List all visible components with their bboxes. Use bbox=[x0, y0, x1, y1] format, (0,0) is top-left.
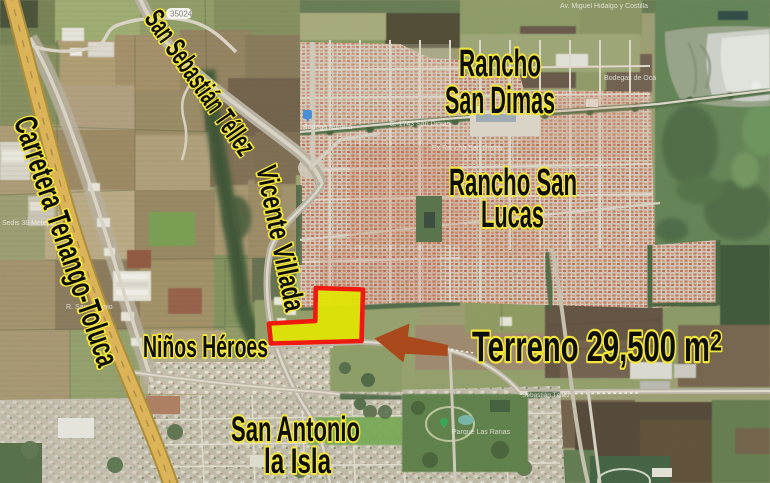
svg-text:Lucas: Lucas bbox=[481, 194, 544, 236]
svg-text:Ex Rancho San Dimas: Ex Rancho San Dimas bbox=[432, 145, 503, 152]
svg-text:Sebastián Téllez: Sebastián Téllez bbox=[522, 392, 570, 399]
svg-text:Niños Héroes: Niños Héroes bbox=[143, 329, 268, 364]
svg-text:Bodega Aurrera: Bodega Aurrera bbox=[303, 124, 352, 131]
svg-text:Rancho: Rancho bbox=[459, 43, 541, 85]
svg-text:Parque Las Ranas: Parque Las Ranas bbox=[452, 429, 510, 436]
svg-text:Av. Miguel Hidalgo y Costilla: Av. Miguel Hidalgo y Costilla bbox=[560, 3, 648, 10]
svg-text:San Dimas: San Dimas bbox=[445, 80, 555, 122]
svg-text:E. 1743 San Dimas: E. 1743 San Dimas bbox=[390, 121, 451, 128]
svg-text:Bodegas de Oca: Bodegas de Oca bbox=[604, 75, 656, 82]
svg-text:Terreno 29,500 m: Terreno 29,500 m bbox=[472, 323, 710, 371]
svg-text:2: 2 bbox=[710, 326, 722, 357]
svg-text:la Isla: la Isla bbox=[264, 442, 331, 481]
